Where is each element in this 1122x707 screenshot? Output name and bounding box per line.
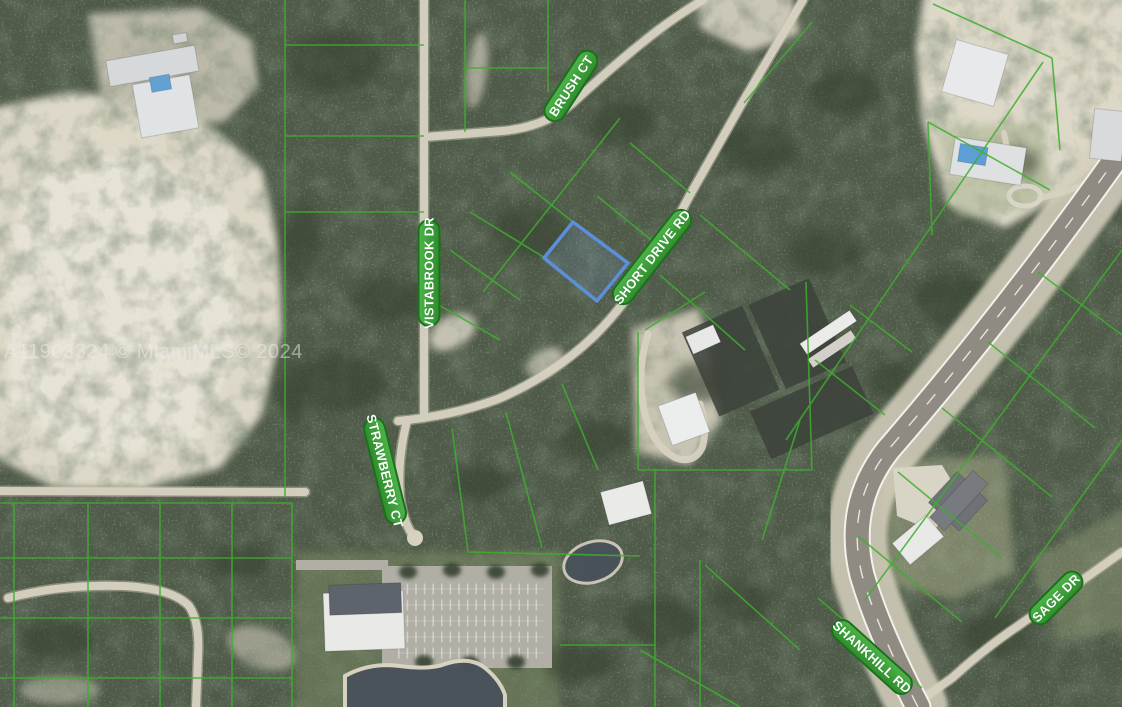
map-canvas: BRUSH CTVISTABROOK DRSHORT DRIVE RDSTRAW… <box>0 0 1122 707</box>
church-building <box>323 583 405 652</box>
church-entry-drive <box>296 560 388 570</box>
building-right-edge <box>1089 108 1122 161</box>
street-label-vistabrook-dr: VISTABROOK DR <box>419 217 440 329</box>
mls-watermark: A11903324 © MiamiMLS© 2024 <box>4 341 303 363</box>
strawberry-culdesac <box>407 530 423 546</box>
road-bottom-left-horizontal <box>0 491 305 492</box>
svg-text:VISTABROOK DR: VISTABROOK DR <box>422 217 437 329</box>
aerial-map: BRUSH CTVISTABROOK DRSHORT DRIVE RDSTRAW… <box>0 0 1122 707</box>
retention-pond <box>345 661 505 707</box>
pool <box>149 74 171 92</box>
